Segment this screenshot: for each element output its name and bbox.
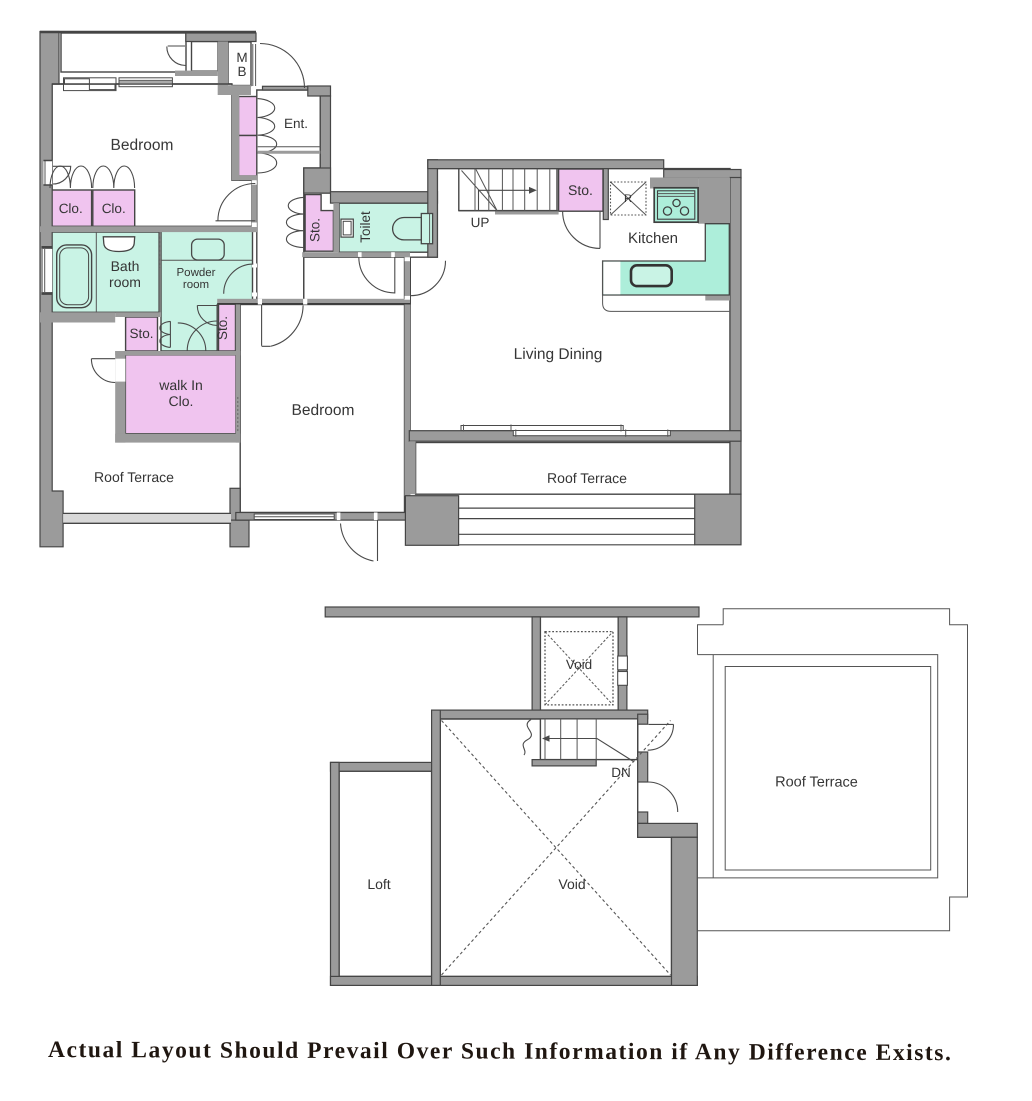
svg-text:Actual Layout Should Prevail O: Actual Layout Should Prevail Over Such I… — [48, 1037, 953, 1066]
svg-text:Sto.: Sto. — [215, 316, 230, 340]
svg-text:Roof Terrace: Roof Terrace — [775, 774, 858, 790]
svg-text:M: M — [236, 50, 247, 65]
svg-text:UP: UP — [471, 215, 490, 230]
svg-text:Roof Terrace: Roof Terrace — [94, 469, 174, 485]
svg-text:DN: DN — [611, 765, 631, 780]
svg-text:walk In: walk In — [158, 377, 203, 393]
svg-text:Void: Void — [558, 876, 585, 892]
svg-text:Toilet: Toilet — [358, 211, 373, 243]
svg-text:Sto.: Sto. — [308, 218, 323, 242]
svg-text:room: room — [109, 274, 141, 290]
svg-text:R: R — [624, 193, 632, 205]
svg-text:Ent.: Ent. — [284, 116, 308, 131]
svg-text:Sto.: Sto. — [568, 182, 593, 198]
svg-text:Clo.: Clo. — [59, 201, 83, 216]
svg-text:Powder: Powder — [176, 267, 215, 279]
svg-text:Void: Void — [566, 657, 592, 672]
svg-text:Roof Terrace: Roof Terrace — [547, 470, 627, 486]
svg-text:Bath: Bath — [111, 258, 140, 274]
svg-text:room: room — [183, 279, 209, 291]
svg-text:Bedroom: Bedroom — [292, 402, 355, 419]
svg-text:Bedroom: Bedroom — [111, 137, 174, 154]
svg-text:Sto.: Sto. — [129, 326, 153, 341]
svg-text:B: B — [237, 64, 246, 79]
svg-text:Living Dining: Living Dining — [514, 346, 603, 363]
svg-text:Kitchen: Kitchen — [628, 230, 678, 247]
svg-text:Clo.: Clo. — [102, 201, 126, 216]
svg-text:Clo.: Clo. — [169, 393, 194, 409]
svg-text:Loft: Loft — [367, 876, 391, 892]
